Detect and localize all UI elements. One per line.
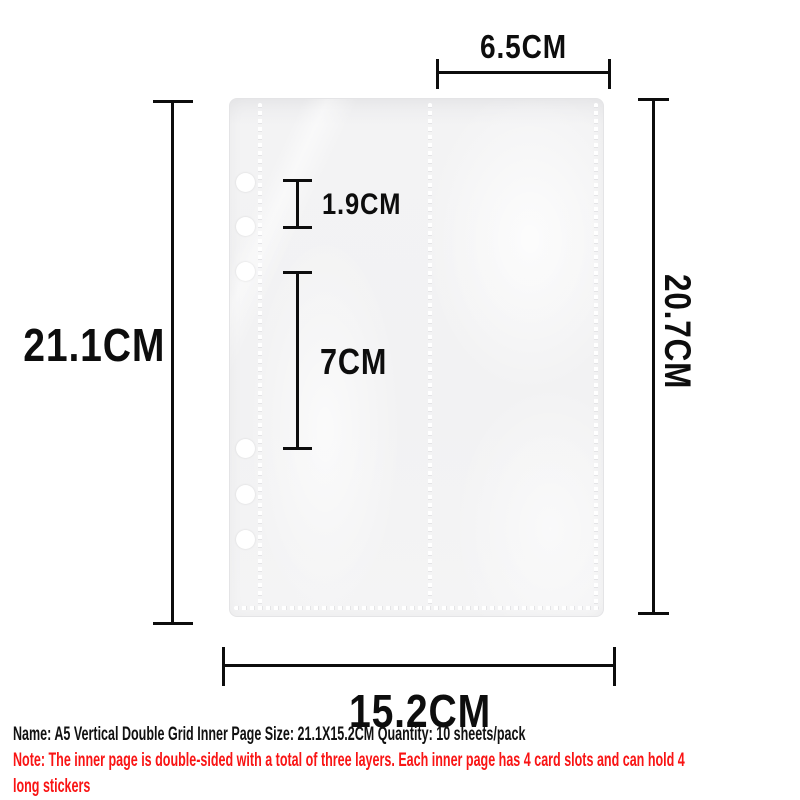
- stitch-seam-right: [594, 103, 598, 606]
- dimension-line: [296, 271, 299, 450]
- binder-hole: [236, 217, 255, 236]
- binder-hole: [236, 262, 255, 281]
- binder-hole: [236, 485, 255, 504]
- binder-hole: [236, 173, 255, 192]
- dimension-tick: [608, 59, 611, 89]
- dimension-line: [436, 71, 611, 74]
- binder-hole: [236, 439, 255, 458]
- dimension-tick: [153, 622, 193, 625]
- stitch-seam-left: [258, 103, 262, 606]
- dimension-label-top-width: 6.5CM: [450, 30, 597, 63]
- binder-hole: [236, 530, 255, 549]
- dimension-line: [222, 664, 616, 667]
- stitch-seam-bottom: [234, 606, 599, 610]
- dimension-label-right-height: 20.7CM: [657, 274, 697, 376]
- binder-pocket-sheet: [229, 98, 604, 617]
- dimension-label-left-height: 21.1CM: [23, 324, 151, 366]
- dimension-label-hole-gap: 1.9CM: [322, 190, 401, 220]
- product-note-line-2: long stickers: [13, 776, 90, 798]
- dimension-line: [296, 179, 299, 229]
- dimension-label-hole-group-gap: 7CM: [320, 344, 387, 380]
- dimension-line: [171, 100, 174, 625]
- dimension-tick: [436, 59, 439, 89]
- dimension-line: [652, 98, 655, 615]
- product-note-line-1: Note: The inner page is double-sided wit…: [13, 750, 685, 772]
- product-name-line: Name: A5 Vertical Double Grid Inner Page…: [13, 724, 525, 746]
- product-dimension-image: 6.5CM 21.1CM 20.7CM 1.9CM 7CM 15.2CM: [0, 0, 800, 800]
- stitch-seam-middle: [428, 103, 432, 606]
- dimension-tick: [283, 447, 312, 450]
- dimension-tick: [613, 647, 616, 686]
- dimension-tick: [638, 612, 669, 615]
- dimension-tick: [283, 226, 312, 229]
